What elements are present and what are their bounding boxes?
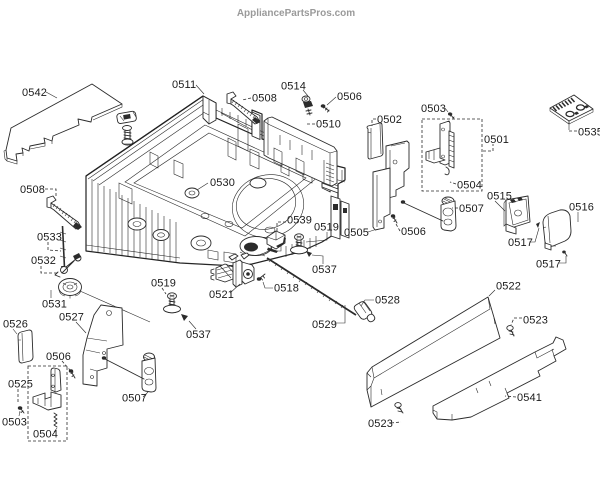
svg-text:0532: 0532 <box>31 255 56 267</box>
svg-text:0510: 0510 <box>316 119 341 131</box>
svg-text:0507: 0507 <box>122 393 147 405</box>
svg-text:0517: 0517 <box>536 259 561 271</box>
svg-text:0501: 0501 <box>484 134 509 146</box>
svg-text:AppliancePartsPros.com: AppliancePartsPros.com <box>237 8 355 19</box>
svg-text:0503: 0503 <box>2 417 27 429</box>
svg-text:0506: 0506 <box>401 226 426 238</box>
svg-text:0537: 0537 <box>186 329 211 341</box>
svg-text:0539: 0539 <box>287 215 312 227</box>
svg-text:0542: 0542 <box>22 87 47 99</box>
svg-text:0505: 0505 <box>344 227 369 239</box>
svg-text:0508: 0508 <box>252 93 277 105</box>
svg-text:0535: 0535 <box>578 127 600 139</box>
svg-text:0521: 0521 <box>209 289 234 301</box>
svg-text:0502: 0502 <box>377 114 402 126</box>
svg-text:0529: 0529 <box>312 319 337 331</box>
svg-text:0503: 0503 <box>421 103 446 115</box>
svg-text:0514: 0514 <box>281 81 306 93</box>
svg-text:0506: 0506 <box>46 351 71 363</box>
svg-text:0511: 0511 <box>172 79 196 91</box>
svg-text:0528: 0528 <box>375 295 400 307</box>
svg-text:0526: 0526 <box>3 319 28 331</box>
svg-text:0522: 0522 <box>496 281 521 293</box>
svg-text:0517: 0517 <box>508 237 533 249</box>
svg-text:0519: 0519 <box>314 222 339 234</box>
svg-text:0537: 0537 <box>312 264 337 276</box>
svg-text:0515: 0515 <box>487 191 512 203</box>
svg-text:0518: 0518 <box>274 283 299 295</box>
svg-text:0523: 0523 <box>368 418 393 430</box>
svg-text:0519: 0519 <box>151 278 176 290</box>
svg-text:0516: 0516 <box>569 202 594 214</box>
svg-text:0530: 0530 <box>210 177 235 189</box>
svg-text:0508: 0508 <box>20 184 45 196</box>
svg-text:0504: 0504 <box>33 429 58 441</box>
svg-text:0507: 0507 <box>459 203 484 215</box>
svg-text:0504: 0504 <box>457 180 482 192</box>
svg-text:0523: 0523 <box>523 315 548 327</box>
svg-text:0506: 0506 <box>337 91 362 103</box>
svg-text:0533: 0533 <box>37 232 62 244</box>
svg-text:0531: 0531 <box>42 299 67 311</box>
svg-text:0525: 0525 <box>8 379 33 391</box>
svg-text:0541: 0541 <box>517 392 542 404</box>
svg-text:0527: 0527 <box>59 312 84 324</box>
